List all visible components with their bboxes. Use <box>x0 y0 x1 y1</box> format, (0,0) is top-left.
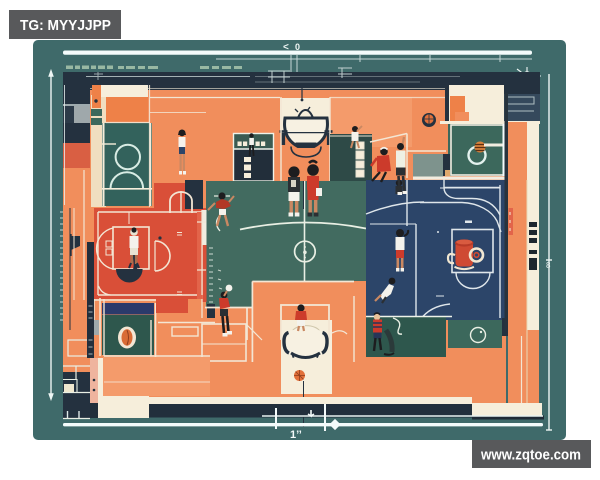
svg-text:0: 0 <box>295 42 300 52</box>
svg-text:8: 8 <box>546 261 551 270</box>
svg-text:1’’: 1’’ <box>290 429 302 441</box>
svg-text:<: < <box>283 42 289 53</box>
svg-text:TG: MYYJJPP: TG: MYYJJPP <box>20 17 111 34</box>
svg-text:www.zqtoe.com: www.zqtoe.com <box>480 448 581 464</box>
